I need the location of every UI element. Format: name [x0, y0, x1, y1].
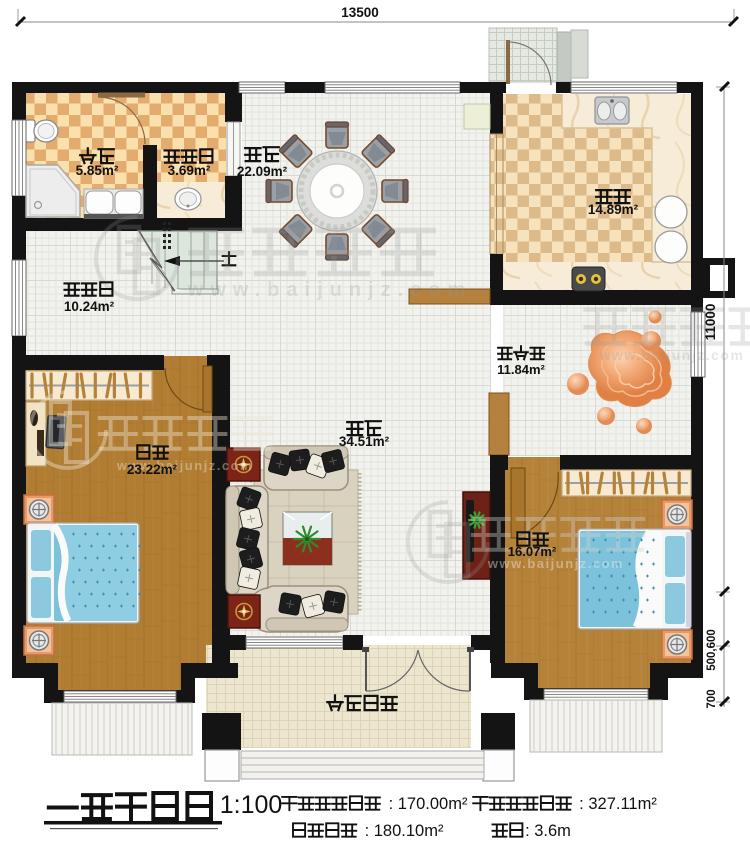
svg-text:1:100: 1:100	[220, 791, 283, 819]
svg-text:5.85m²: 5.85m²	[76, 163, 119, 178]
svg-text:700: 700	[706, 689, 718, 708]
svg-text:34.51m²: 34.51m²	[339, 434, 390, 449]
svg-text:www.baijunjz.com: www.baijunjz.com	[187, 279, 473, 301]
svg-text:10.24m²: 10.24m²	[64, 299, 115, 314]
svg-text:11000: 11000	[703, 304, 718, 341]
svg-text:3.69m²: 3.69m²	[168, 163, 211, 178]
svg-text:23.22m²: 23.22m²	[127, 462, 178, 477]
svg-text:16.07m²: 16.07m²	[508, 544, 557, 559]
svg-text:www.baijunjz.com: www.baijunjz.com	[599, 347, 745, 363]
svg-text:: 170.00m²: : 170.00m²	[389, 795, 468, 813]
svg-text:: 3.6m: : 3.6m	[525, 822, 571, 840]
svg-text:11.84m²: 11.84m²	[497, 362, 545, 377]
svg-text:13500: 13500	[341, 5, 379, 20]
svg-text:14.89m²: 14.89m²	[588, 202, 639, 217]
svg-text:: 180.10m²: : 180.10m²	[365, 822, 444, 840]
svg-text:: 327.11m²: : 327.11m²	[579, 795, 657, 813]
svg-text:22.09m²: 22.09m²	[237, 164, 288, 179]
svg-text:500,600: 500,600	[706, 629, 718, 671]
